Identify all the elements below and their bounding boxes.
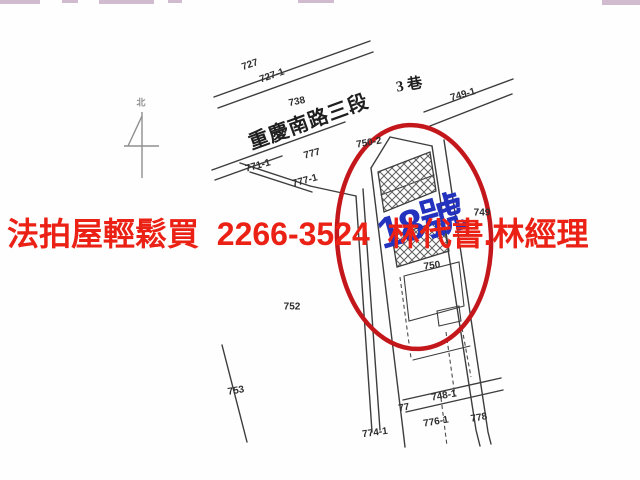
parcel-label-774-1: 774-1	[362, 426, 389, 440]
north-label: 北	[136, 96, 145, 109]
parcel-label-777: 777	[303, 147, 322, 162]
parcel-label-77: 77	[398, 402, 411, 415]
parcel-label-749-1: 749-1	[449, 86, 477, 104]
parcel-label-750: 750	[423, 259, 441, 272]
parcel-label-750-2: 750-2	[355, 135, 382, 150]
ad-banner-text: 法拍屋輕鬆買 2266-3524 林代書.林經理	[7, 214, 589, 254]
parcel-label-727-1: 727-1	[258, 67, 286, 86]
parcel-label-777-1: 777-1	[291, 172, 319, 189]
parcel-label-727: 727	[240, 57, 259, 73]
parcel-label-771-1: 771-1	[244, 157, 272, 174]
lane-label: 3 巷	[394, 71, 424, 96]
parcel-label-778: 778	[470, 411, 488, 425]
parcel-label-753: 753	[227, 384, 245, 398]
cadastral-map-page: 727727-1738777771-1777-1749-1750-2749750…	[0, 0, 640, 480]
parcel-label-752: 752	[284, 302, 301, 313]
parcel-label-748-1: 748-1	[430, 388, 457, 403]
parcel-label-776-1: 776-1	[422, 414, 449, 429]
